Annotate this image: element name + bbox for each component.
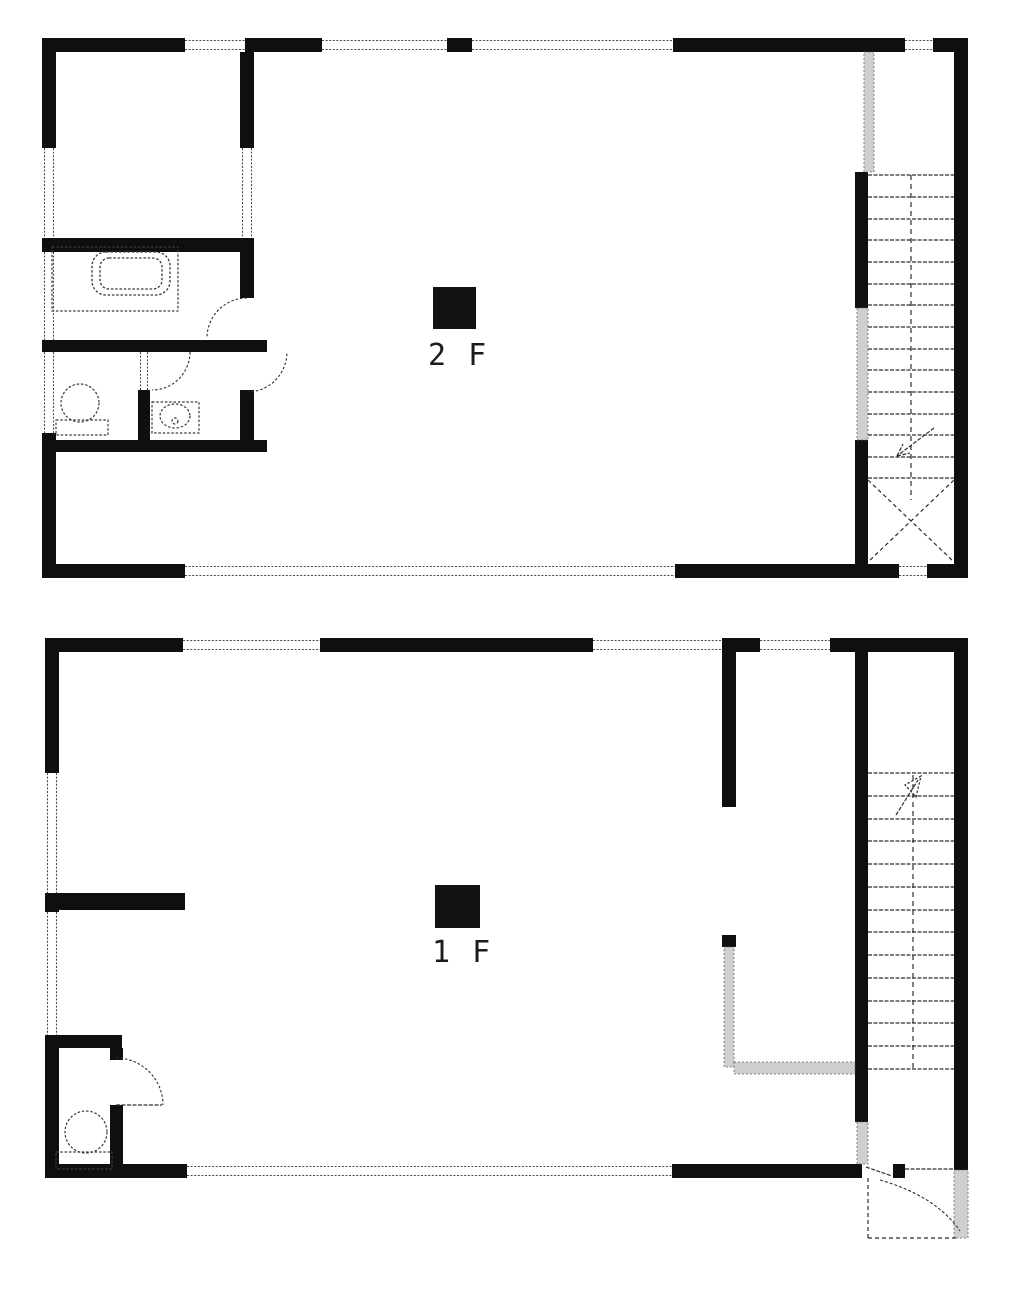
exterior-wall-left — [42, 447, 56, 578]
exterior-wall-right — [954, 638, 968, 1170]
door-arc — [207, 298, 247, 338]
stair-arrow — [897, 444, 903, 456]
entry-door-arc — [880, 1180, 960, 1231]
exterior-wall-top — [42, 38, 185, 52]
toilet-bowl — [61, 384, 99, 422]
door-arc — [247, 352, 287, 392]
exterior-wall-top — [447, 38, 472, 52]
exterior-wall-bottom — [675, 564, 899, 578]
second-floor-label: 2 F — [428, 341, 488, 371]
interior-wall — [42, 238, 254, 252]
exterior-wall-left — [45, 1035, 59, 1178]
porch-wall — [954, 1170, 968, 1238]
counter — [734, 1062, 855, 1074]
first-floor — [45, 638, 968, 1238]
exterior-wall-left — [45, 638, 59, 773]
stair-rail — [864, 52, 874, 172]
interior-opening — [138, 352, 150, 390]
first-floor-marker — [435, 885, 480, 928]
floor-plan-drawing — [0, 0, 1018, 1294]
interior-wall — [722, 652, 736, 807]
counter-post — [722, 935, 736, 947]
first-floor-label: 1 F — [432, 938, 492, 968]
stair-arrow — [897, 428, 934, 456]
door-post — [893, 1164, 905, 1178]
exterior-wall-top — [320, 638, 593, 652]
interior-wall — [240, 252, 254, 298]
second-floor-marker — [433, 287, 476, 329]
interior-wall — [45, 893, 185, 910]
exterior-wall-top — [722, 638, 760, 652]
sink-drain — [172, 418, 178, 424]
exterior-wall-top — [673, 38, 905, 52]
stair-wall — [855, 440, 868, 564]
second-floor — [42, 38, 968, 578]
bathtub-inner — [100, 258, 162, 289]
stair-door-opening — [857, 1122, 868, 1164]
interior-wall — [42, 440, 267, 452]
exterior-wall-top — [45, 638, 183, 652]
exterior-wall-bottom — [672, 1164, 862, 1178]
floor-plan-document: 2 F 1 F — [0, 0, 1018, 1294]
exterior-wall-bottom — [927, 564, 968, 578]
door-arc — [152, 352, 190, 390]
stair-wall — [855, 652, 868, 1122]
stair-wall — [855, 172, 868, 308]
exterior-wall-right — [954, 38, 968, 578]
stair-arrow — [896, 780, 918, 815]
exterior-wall-left — [42, 38, 56, 148]
door-arc — [116, 1058, 163, 1105]
entry-door-leaf — [866, 1167, 892, 1176]
toilet-bowl — [65, 1111, 107, 1153]
exterior-wall-top — [830, 638, 968, 652]
stair-half-wall — [857, 308, 868, 440]
toilet-room-wall — [45, 1035, 122, 1048]
interior-wall — [138, 390, 150, 440]
stair-arrow — [897, 453, 910, 456]
exterior-wall-top — [245, 38, 322, 52]
counter — [724, 947, 734, 1067]
interior-wall — [42, 340, 267, 352]
interior-wall — [240, 38, 254, 148]
bath-platform — [52, 247, 178, 311]
exterior-wall-bottom — [42, 564, 185, 578]
